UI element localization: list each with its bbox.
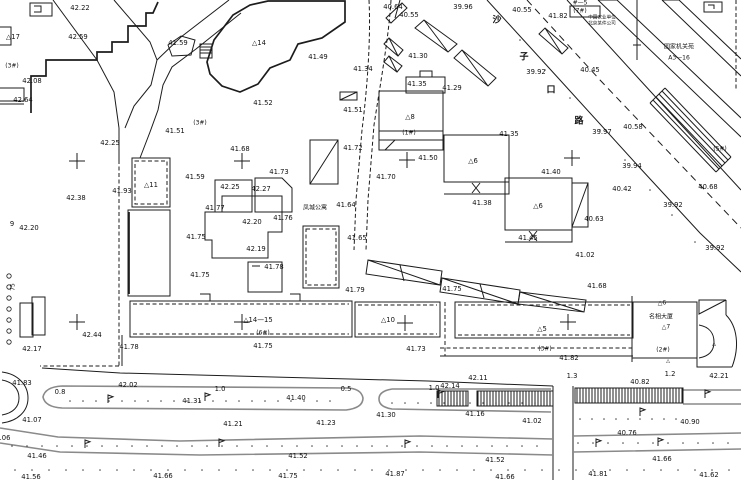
crosswalk-hatch [437,391,468,406]
elevation-label: 41.93 [112,187,131,195]
elevation-label: 42.64 [13,96,32,104]
elevation-label: 42.59 [68,33,87,41]
elevation-label: △7 [662,324,671,331]
elevation-label: 41.64 [336,201,355,209]
center-lane-linework [354,0,588,312]
elevation-label: 41.78 [264,263,283,271]
elevation-label: 41.81 [588,470,607,478]
elevation-label: △14—15 [243,316,272,324]
elevation-label: 41.21 [223,420,242,428]
elevation-label: 39.92 [663,201,682,209]
elevation-label: 40.58 [623,123,642,131]
streetlamp-icon [640,408,645,416]
elevation-label: (5#) [713,146,727,153]
elevation-label: 41.23 [316,419,335,427]
elevation-label: △ [712,342,716,348]
crosswalk-hatch [477,391,553,406]
elevation-label: (3#) [5,63,19,70]
elevation-label: 41.75 [190,271,209,279]
elevation-label: △6 [533,202,543,210]
elevation-label: 41.31 [182,397,201,405]
elevation-label: 39.97 [592,128,611,136]
elevation-label: 40.90 [680,418,699,426]
elevation-label: 42.25 [100,139,119,147]
elevation-label: 41.70 [376,173,395,181]
elevation-label: 41.75 [253,342,272,350]
elevation-label: 41.68 [230,145,249,153]
elevation-label: (1#) [402,130,416,137]
elevation-label: 40.63 [584,215,603,223]
elevation-label: 41.51 [343,106,362,114]
elevation-label: 41.40 [286,394,305,402]
elevation-label: 41.87 [385,470,404,478]
survey-cross-icon [234,153,250,169]
streetlamp-icon [596,439,601,447]
place-name-label: 名相大厦 [649,313,673,321]
streetlamp-icon [705,390,710,398]
survey-cross-icon [69,314,85,330]
survey-cross-icon [564,150,580,166]
streetlamp-icon [108,395,113,403]
survey-cross-icon [69,153,85,169]
elevation-label: 41.52 [288,452,307,460]
strip-buildings-linework [122,294,633,366]
elevation-label: 41.02 [522,417,541,425]
elevation-label: 75 [10,283,17,291]
elevation-label: 39.92 [526,68,545,76]
elevation-label: 42.14 [440,382,459,390]
elevation-label: 1.0 [215,385,226,393]
elevation-label: 42.44 [82,331,101,339]
elevation-label: 42.27 [251,185,270,193]
elevation-label: 41.35 [499,130,518,138]
elevation-label: 41.46 [27,452,46,460]
place-name-label: 中国农业单位 [588,14,616,21]
elevation-label: 9 [10,220,14,228]
elevation-label: 41.77 [205,204,224,212]
elevation-label: 41.82 [548,12,567,20]
elevation-label: 39.94 [622,162,641,170]
elevation-label: 0.5 [341,385,352,393]
street-linework [0,297,741,480]
elevation-label: 41.30 [408,52,427,60]
elevation-label: 41.75 [278,472,297,480]
elevation-label: 41.38 [472,199,491,207]
elevation-label: 41.50 [418,154,437,162]
elevation-label: 41.30 [376,411,395,419]
elevation-label: △14 [252,39,266,47]
stair-band [650,88,731,172]
elevation-label: 42.02 [118,381,137,389]
elevation-label: 42.19 [246,245,265,253]
tower-block-linework [632,296,737,367]
survey-map-canvas: 42.2242.59△17(3#)42.0842.6441.59△1441.52… [0,0,741,480]
place-name-label: 子 [519,52,528,63]
elevation-label: (6#) [256,330,270,337]
elevation-label: 40.68 [698,183,717,191]
elevation-label: 41.75 [186,233,205,241]
streetlamp-icon [85,440,90,448]
elevation-label: 41.40 [541,168,560,176]
elevation-label: 41.79 [345,286,364,294]
elevation-label: 41.02 [575,251,594,259]
elevation-label: 41.56 [21,473,40,480]
compound-buildings-linework [128,92,357,296]
elevation-label: 41.59 [185,173,204,181]
elevation-label: 41.52 [253,99,272,107]
elevation-label: 1.3 [567,372,578,380]
elevation-label: 41.51 [165,127,184,135]
elevation-label: 41.66 [652,455,671,463]
elevation-label: 1.0 [429,384,440,392]
elevation-label: 42.08 [22,77,41,85]
elevation-label: 41.76 [273,214,292,222]
elevation-label: 41.62 [699,471,718,479]
diagonal-road-linework [384,0,741,272]
elevation-label: 40.55 [399,11,418,19]
elevation-label: 42.20 [242,218,261,226]
elevation-label: 41.29 [442,84,461,92]
place-name-label: 口 [546,85,555,96]
elevation-label: 41.73 [406,345,425,353]
elevation-label: 40.64 [383,3,402,11]
elevation-label: 39.92 [705,244,724,252]
elevation-label: A3—16 [668,55,690,62]
survey-cross-icon [560,314,576,330]
survey-cross-icon [399,152,415,168]
elevation-label: .06 [0,434,10,442]
elevation-label: △ [666,359,670,365]
elevation-label: 40.76 [617,429,636,437]
place-name-label: 沙 [492,15,501,26]
elevation-label: 42.20 [19,224,38,232]
elevation-label: 42.11 [468,374,487,382]
elevation-label: 41.73 [269,168,288,176]
elevation-label: 41.52 [485,456,504,464]
corner-marker-icon [704,2,722,12]
streetlamp-icon [205,393,210,401]
elevation-label: △8 [405,113,415,121]
elevation-label: 41.78 [119,343,138,351]
elevation-label: 41.45 [518,234,537,242]
streetlamp-icon [405,440,410,448]
survey-cross-icon [397,315,413,331]
elevation-label: #—5 [573,0,588,7]
elevation-label: △6 [468,157,478,165]
topleft-block-linework [0,0,345,366]
elevation-label: 41.16 [465,410,484,418]
elevation-label: (3#) [193,120,207,127]
elevation-label: 41.83 [12,379,31,387]
elevation-label: (2#) [656,347,670,354]
elevation-label: 41.82 [559,354,578,362]
elevation-label: △17 [6,33,20,41]
elevation-label: △10 [381,316,395,324]
elevation-label: △6 [658,300,667,307]
elevation-label: (3#) [538,346,552,353]
elevation-label: 1.2 [665,370,676,378]
elevation-label: 42.17 [22,345,41,353]
elevation-label: 41.66 [495,473,514,480]
elevation-label: △11 [144,181,158,189]
elevation-label: 41.66 [153,472,172,480]
elevation-label: 42.22 [70,4,89,12]
elevation-label: 41.72 [343,144,362,152]
place-name-label: 国家机关苑 [664,43,694,51]
elevation-label: 41.34 [353,65,372,73]
place-name-label: 北京某件公司 [588,20,616,27]
streetlamp-icon [658,438,663,446]
elevation-label: 41.07 [22,416,41,424]
elevation-label: 41.49 [308,53,327,61]
elevation-label: 40.42 [612,185,631,193]
elevation-label: 40.55 [512,6,531,14]
elevation-label: 42.25 [220,183,239,191]
elevation-label: 41.59 [168,39,187,47]
elevation-label: (7#) [573,8,587,15]
place-name-label: 凤城公寓 [303,204,327,212]
elevation-label: 41.35 [407,80,426,88]
elevation-label: 41.75 [442,285,461,293]
place-name-label: 路 [574,115,584,127]
overpass-hatch [575,388,683,403]
elevation-label: 39.96 [453,3,472,11]
elevation-label: 41.68 [587,282,606,290]
elevation-label: △5 [537,325,547,333]
map-drawing: 42.2242.59△17(3#)42.0842.6441.59△1441.52… [0,0,741,480]
elevation-label: 40.82 [630,378,649,386]
elevation-label: 41.65 [347,234,366,242]
elevation-label: 42.21 [709,372,728,380]
elevation-label: 42.38 [66,194,85,202]
elevation-label: 0.8 [55,388,66,396]
elevation-label: 40.45 [580,66,599,74]
